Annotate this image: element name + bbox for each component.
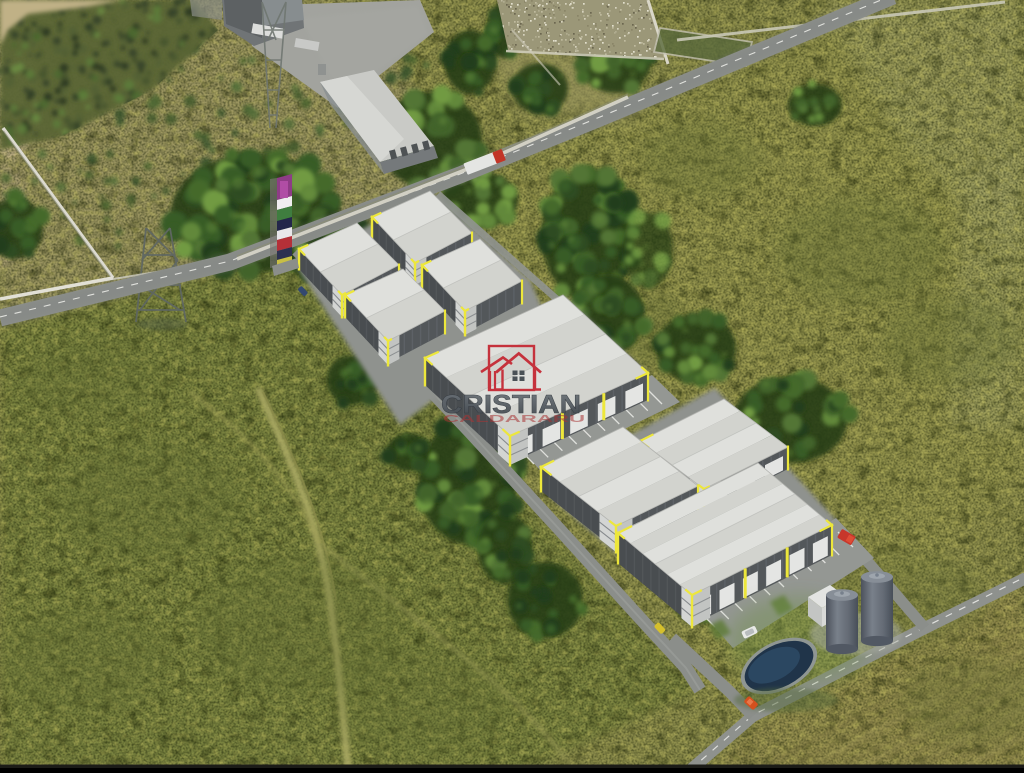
svg-text:CALDARARU: CALDARARU (443, 413, 585, 425)
